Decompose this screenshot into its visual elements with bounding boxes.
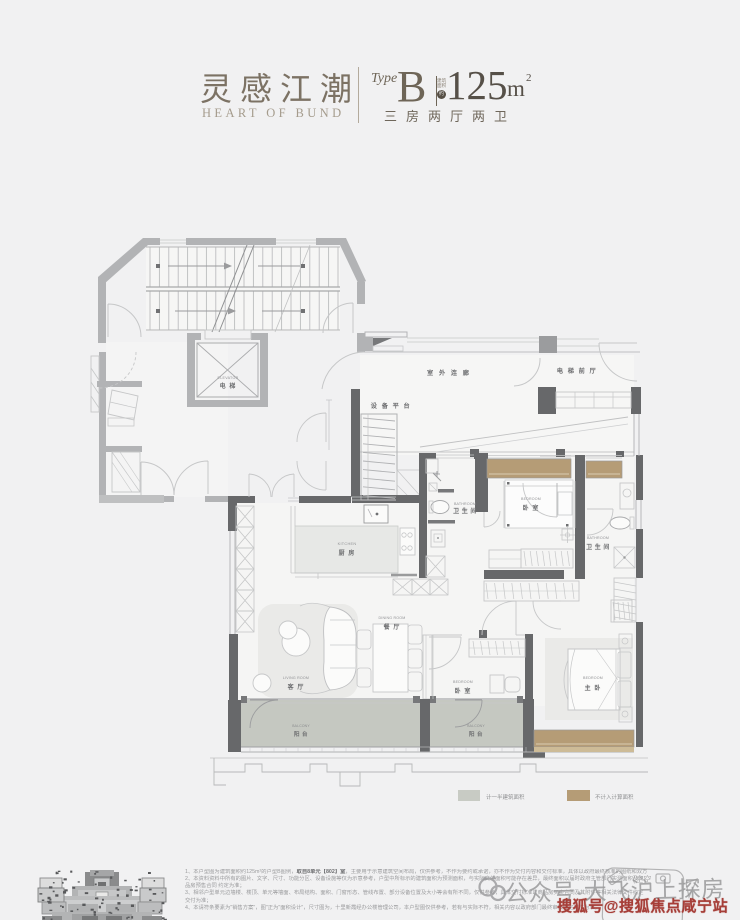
svg-text:DINING ROOM: DINING ROOM: [379, 616, 406, 620]
svg-text:BEDROOM: BEDROOM: [521, 497, 541, 501]
svg-text:客 厅: 客 厅: [287, 683, 305, 691]
svg-text:BALCONY: BALCONY: [292, 724, 310, 728]
svg-text:阳 台: 阳 台: [469, 730, 483, 738]
svg-text:BATHROOM: BATHROOM: [587, 536, 609, 540]
svg-text:室 外 连 廊: 室 外 连 廊: [427, 369, 471, 377]
svg-text:卫 生 间: 卫 生 间: [586, 543, 610, 551]
svg-text:卧 室: 卧 室: [523, 504, 540, 512]
svg-text:卫 生 间: 卫 生 间: [453, 507, 477, 515]
svg-text:LIVING ROOM: LIVING ROOM: [283, 676, 309, 680]
svg-text:卧 室: 卧 室: [455, 687, 472, 695]
svg-text:电 梯: 电 梯: [220, 382, 237, 390]
svg-text:阳 台: 阳 台: [294, 730, 308, 738]
svg-text:BALCONY: BALCONY: [467, 724, 485, 728]
svg-text:设 备 平 台: 设 备 平 台: [371, 402, 411, 410]
svg-text:电 梯 前 厅: 电 梯 前 厅: [557, 367, 597, 375]
svg-text:厨 房: 厨 房: [339, 549, 356, 557]
svg-text:KITCHEN: KITCHEN: [338, 542, 357, 546]
svg-text:餐 厅: 餐 厅: [383, 623, 401, 631]
svg-text:BATHROOM: BATHROOM: [454, 502, 476, 506]
svg-text:BEDROOM: BEDROOM: [583, 676, 603, 680]
svg-text:主 卧: 主 卧: [585, 684, 602, 692]
svg-text:ELEVATOR: ELEVATOR: [218, 376, 239, 380]
svg-text:BEDROOM: BEDROOM: [453, 680, 473, 684]
